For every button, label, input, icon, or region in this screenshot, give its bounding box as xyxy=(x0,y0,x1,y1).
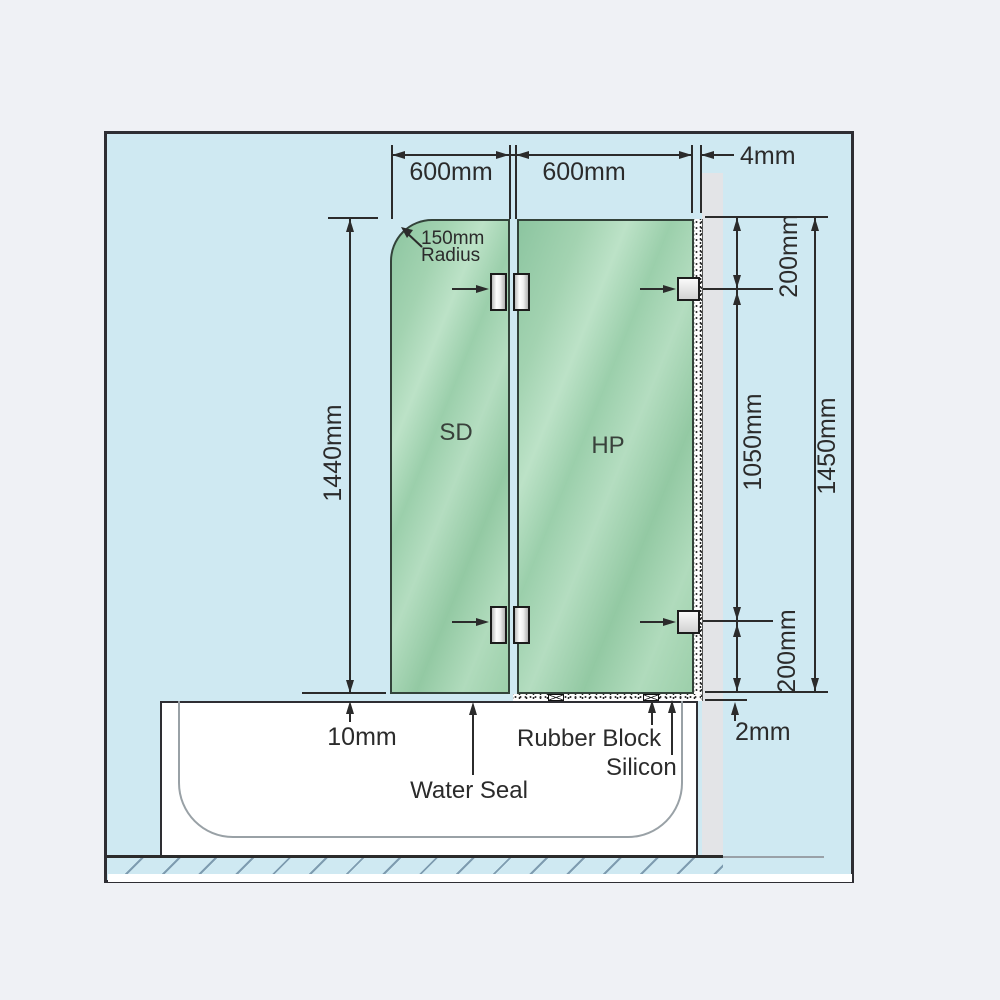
dim-arrow-icon xyxy=(496,151,509,159)
dim-arrow-icon xyxy=(811,218,819,231)
silicon-leader xyxy=(671,711,673,755)
baseline-bottom xyxy=(705,691,828,693)
ground-hatch-band xyxy=(107,858,723,874)
tick-1440-bottom xyxy=(302,692,386,694)
dim-arrow-icon xyxy=(516,151,529,159)
dim-arrow-icon xyxy=(701,151,714,159)
dim-bottom-bracket-offset: 200mm xyxy=(774,606,800,696)
hinge-bottom-pointer-line xyxy=(452,621,478,623)
hinge-top-pointer-line xyxy=(452,288,478,290)
dim-arrow-icon xyxy=(733,275,741,288)
dim-top-bracket-offset: 200mm xyxy=(776,211,802,301)
dim-arrow-icon xyxy=(811,678,819,691)
dim-arrow-icon xyxy=(733,624,741,637)
dim-sd-width: 600mm xyxy=(391,159,511,185)
dim-arrow-icon xyxy=(733,292,741,305)
dim-line-chain xyxy=(736,218,738,692)
hinge-top-pointer-arrow-icon xyxy=(476,285,489,293)
dim-line-1440 xyxy=(349,219,351,694)
rubber-block-marker-left xyxy=(548,694,564,701)
dim-arrow-icon xyxy=(679,151,692,159)
dim-arrow-icon xyxy=(346,680,354,693)
dim-bracket-spacing: 1050mm xyxy=(740,387,766,497)
dim-arrow-icon xyxy=(733,678,741,691)
water-seal-leader xyxy=(472,713,474,775)
dim-arrow-icon xyxy=(346,219,354,232)
hinge-top-right-plate xyxy=(513,273,530,311)
dim-sd-bottom-gap: 10mm xyxy=(322,724,402,750)
silicon-label: Silicon xyxy=(606,755,677,780)
bracket-bottom-pointer-arrow-icon xyxy=(663,618,676,626)
hinge-bottom-right-plate xyxy=(513,606,530,644)
dim-hp-width: 600mm xyxy=(524,159,644,185)
bracket-bottom-pointer-line xyxy=(640,621,665,623)
tick-bracket-top xyxy=(703,288,773,290)
tub-edge-ref-line xyxy=(705,699,747,701)
hinge-bottom xyxy=(490,606,532,640)
water-seal-label: Water Seal xyxy=(399,778,539,803)
dim-arrow-icon xyxy=(733,218,741,231)
tick-bracket-bottom xyxy=(703,620,773,622)
shower-screen-installation-diagram: 600mm 600mm 4mm 1440mm 200mm 1050mm 1450… xyxy=(0,0,1000,1000)
rubber-block-label: Rubber Block xyxy=(517,726,661,751)
sd-panel-label: SD xyxy=(416,420,496,445)
hinge-bottom-left-plate xyxy=(490,606,507,644)
bracket-top-pointer-arrow-icon xyxy=(663,285,676,293)
floor-strip xyxy=(108,874,852,882)
wall-bracket-bottom xyxy=(677,610,700,634)
dim-10mm-leader xyxy=(349,712,351,722)
dim-sd-height: 1440mm xyxy=(320,398,346,508)
hinge-bottom-pointer-arrow-icon xyxy=(476,618,489,626)
wall xyxy=(702,173,723,858)
hp-panel-label: HP xyxy=(568,433,648,458)
ground-line-extension xyxy=(723,856,824,858)
dim-panel-height: 1450mm xyxy=(814,391,840,501)
hinge-top-left-plate xyxy=(490,273,507,311)
rubber-block-leader xyxy=(651,711,653,725)
radius-label-line2: Radius xyxy=(421,247,484,264)
dim-arrow-icon xyxy=(733,607,741,620)
dim-wall-gap: 4mm xyxy=(740,143,796,169)
dim-arrow-icon xyxy=(392,151,405,159)
radius-label: 150mm Radius xyxy=(421,230,484,264)
bracket-top-pointer-line xyxy=(640,288,665,290)
hinge-top xyxy=(490,273,532,307)
dim-line-top xyxy=(392,154,692,156)
wall-bracket-top xyxy=(677,277,700,301)
dim-hp-bottom-gap: 2mm xyxy=(735,719,791,745)
